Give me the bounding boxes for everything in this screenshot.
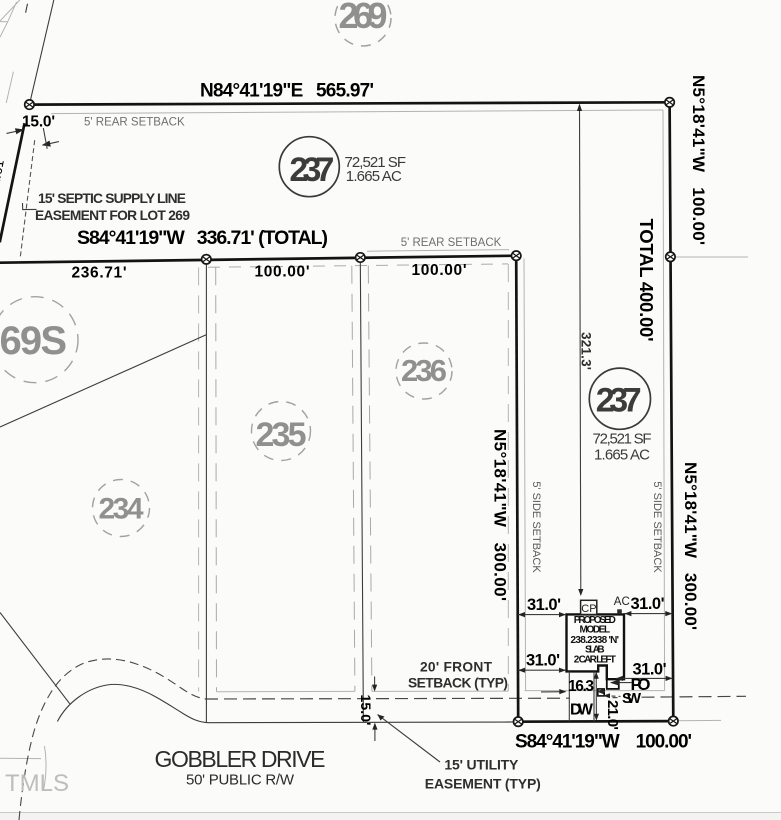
svg-text:CP: CP — [581, 603, 596, 615]
svg-text:5' SIDE SETBACK: 5' SIDE SETBACK — [530, 481, 542, 573]
svg-text:5' REAR SETBACK: 5' REAR SETBACK — [401, 237, 502, 249]
svg-text:EASEMENT FOR LOT 269: EASEMENT FOR LOT 269 — [35, 208, 190, 223]
svg-text:236: 236 — [401, 353, 447, 388]
svg-text:5' SIDE SETBACK: 5' SIDE SETBACK — [651, 481, 663, 573]
svg-text:269: 269 — [339, 0, 388, 36]
svg-text:236.71': 236.71' — [72, 265, 127, 282]
svg-text:269S: 269S — [0, 319, 67, 363]
svg-text:N5°18'41"W 300.00': N5°18'41"W 300.00' — [681, 462, 700, 630]
svg-text:72,521 SF: 72,521 SF — [593, 431, 652, 448]
svg-text:20' FRONT: 20' FRONT — [420, 660, 493, 675]
svg-text:SETBACK (TYP): SETBACK (TYP) — [408, 676, 508, 691]
svg-text:N5°18'41"W 300.00': N5°18'41"W 300.00' — [491, 429, 510, 601]
svg-text:2 CAR LEFT: 2 CAR LEFT — [574, 655, 616, 666]
svg-text:100.00': 100.00' — [412, 262, 467, 279]
svg-text:237: 237 — [596, 382, 642, 420]
svg-text:50' PUBLIC R/W: 50' PUBLIC R/W — [186, 772, 295, 789]
svg-text:31.0': 31.0' — [527, 596, 561, 614]
svg-text:DW: DW — [570, 702, 594, 719]
svg-text:31.0': 31.0' — [526, 652, 560, 670]
svg-text:N5°18'41"W 100.00': N5°18'41"W 100.00' — [689, 75, 708, 245]
svg-text:21.0': 21.0' — [604, 700, 621, 730]
svg-text:15.0': 15.0' — [22, 114, 55, 131]
svg-text:AC: AC — [614, 596, 630, 608]
svg-text:321.3': 321.3' — [579, 332, 594, 370]
svg-text:15.0': 15.0' — [358, 695, 374, 726]
svg-text:5' REAR SETBACK: 5' REAR SETBACK — [84, 117, 185, 129]
svg-text:MODEL: MODEL — [580, 624, 611, 635]
svg-text:S84°41'19"W 336.71' (TOTAL): S84°41'19"W 336.71' (TOTAL) — [77, 227, 328, 249]
svg-text:100.00': 100.00' — [255, 264, 310, 281]
svg-text:234: 234 — [99, 493, 144, 526]
svg-text:15' UTILITY: 15' UTILITY — [444, 757, 519, 773]
svg-text:15' SEPTIC SUPPLY LINE: 15' SEPTIC SUPPLY LINE — [38, 191, 186, 206]
svg-text:31.0': 31.0' — [631, 595, 665, 613]
svg-text:16.3: 16.3 — [568, 678, 594, 695]
svg-text:EASEMENT (TYP): EASEMENT (TYP) — [425, 776, 541, 792]
svg-text:TOTAL 400.00': TOTAL 400.00' — [636, 219, 657, 342]
svg-text:1.665 AC: 1.665 AC — [346, 168, 402, 185]
svg-text:237: 237 — [289, 151, 334, 189]
svg-text:1.665 AC: 1.665 AC — [594, 447, 650, 464]
svg-text:GOBBLER DRIVE: GOBBLER DRIVE — [155, 746, 326, 772]
svg-text:S84°41'19"W 100.00': S84°41'19"W 100.00' — [515, 732, 692, 753]
svg-text:235: 235 — [256, 416, 307, 454]
svg-text:SW: SW — [622, 690, 642, 707]
svg-text:N84°41'19"E 565.97': N84°41'19"E 565.97' — [200, 81, 374, 102]
svg-text:TMLS: TMLS — [5, 770, 69, 797]
